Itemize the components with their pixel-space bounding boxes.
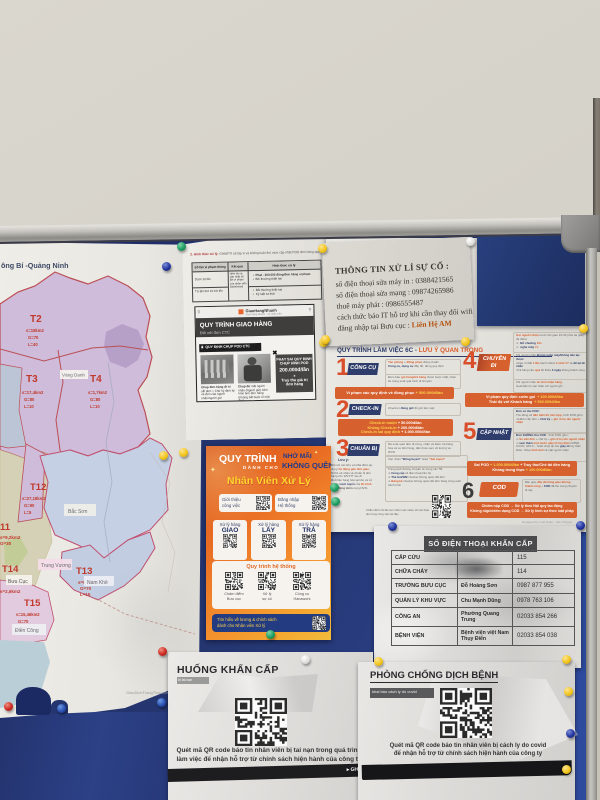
svg-text:L=5: L=5	[24, 510, 32, 515]
svg-text:T12: T12	[30, 482, 46, 493]
svg-text:L=10: L=10	[24, 404, 34, 409]
svg-text:s=18km2: s=18km2	[26, 328, 44, 333]
svg-text:L=40: L=40	[28, 342, 38, 347]
svg-text:s=1,7km2: s=1,7km2	[88, 390, 108, 395]
svg-text:ông Bí -Quảng Ninh: ông Bí -Quảng Ninh	[1, 261, 68, 270]
svg-text:s=15,46km2: s=15,46km2	[16, 612, 40, 617]
svg-text:s=9,2km2: s=9,2km2	[0, 535, 21, 540]
svg-text:s=2,6km2: s=2,6km2	[0, 589, 21, 594]
svg-text:L=10: L=10	[90, 404, 100, 409]
svg-text:T2: T2	[30, 314, 42, 325]
svg-text:G=80: G=80	[90, 397, 101, 402]
svg-text:G=70: G=70	[28, 335, 39, 340]
svg-text:11: 11	[0, 522, 11, 533]
svg-text:G=30: G=30	[0, 541, 12, 546]
svg-text:T3: T3	[26, 374, 38, 385]
svg-text:T15: T15	[24, 598, 41, 609]
svg-text:T14: T14	[2, 564, 19, 575]
svg-text:Vàng Danh: Vàng Danh	[62, 373, 85, 378]
svg-text:Bắc Sơn: Bắc Sơn	[68, 508, 88, 515]
svg-text:Bưu Cục: Bưu Cục	[8, 579, 28, 585]
svg-text:s=27,18km2: s=27,18km2	[22, 496, 46, 501]
svg-text:G=70: G=70	[18, 619, 29, 624]
svg-text:G=90: G=90	[24, 503, 35, 508]
svg-text:Trung Vương: Trung Vương	[41, 563, 71, 569]
svg-text:s=17,4km2: s=17,4km2	[22, 390, 44, 395]
svg-text:T4: T4	[90, 374, 102, 385]
svg-text:G=80: G=80	[24, 397, 35, 402]
svg-text:Điền Công: Điền Công	[15, 628, 39, 634]
